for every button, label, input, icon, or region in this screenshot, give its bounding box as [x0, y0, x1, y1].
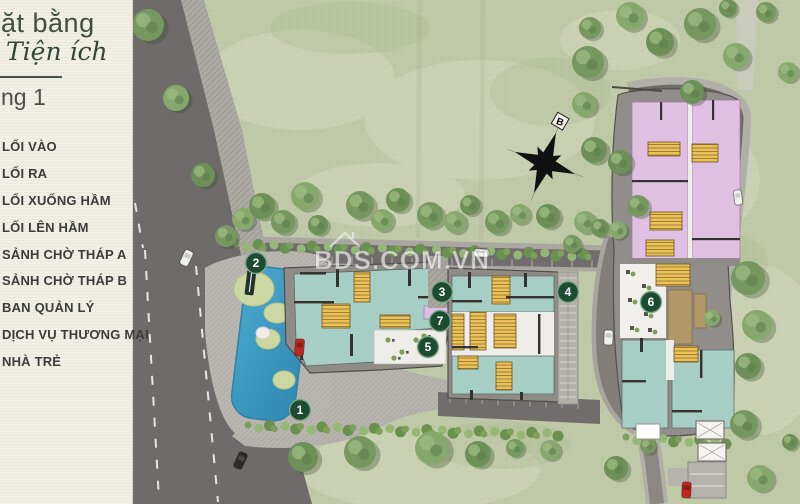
marker-1: 1: [290, 400, 311, 421]
legend-item: LỐI VÀO: [0, 133, 132, 160]
legend-item: SẢNH CHỜ THÁP A: [0, 241, 132, 268]
site-plan-page: 1 2 3 4 5 6 7 B BDS.COM.VN ặt bằng Tiện …: [0, 0, 800, 504]
plan-title-line2: Tiện ích: [6, 39, 132, 64]
legend-list: LỐI VÀO LỐI RA LỐI XUỐNG HẦM LỐI LÊN HẦM…: [0, 133, 132, 375]
svg-text:3: 3: [439, 285, 446, 299]
legend-item: DỊCH VỤ THƯƠNG MẠI: [0, 321, 132, 348]
marker-7: 7: [430, 311, 451, 332]
legend-item: LỐI XUỐNG HẦM: [0, 187, 132, 214]
title-divider: [0, 76, 62, 78]
legend-item: BAN QUẢN LÝ: [0, 294, 132, 321]
marker-6: 6: [641, 292, 662, 313]
svg-text:1: 1: [297, 403, 304, 417]
car-icon: [682, 482, 692, 498]
legend-item: NHÀ TRẺ: [0, 348, 132, 375]
floor-label: ng 1: [1, 84, 132, 111]
marker-3: 3: [432, 282, 453, 303]
marker-4: 4: [558, 282, 579, 303]
svg-text:6: 6: [648, 295, 655, 309]
svg-text:5: 5: [425, 340, 432, 354]
building-right-tower: [612, 87, 740, 436]
svg-text:BDS.COM.VN: BDS.COM.VN: [314, 245, 490, 275]
legend-item: LỐI LÊN HẦM: [0, 214, 132, 241]
car-icon: [294, 339, 304, 357]
legend-sidebar: ặt bằng Tiện ích ng 1 LỐI VÀO LỐI RA LỐI…: [0, 0, 133, 504]
marker-5: 5: [418, 337, 439, 358]
legend-item: SẢNH CHỜ THÁP B: [0, 267, 132, 294]
room-tan: [668, 290, 692, 344]
svg-text:7: 7: [437, 314, 444, 328]
svg-text:2: 2: [253, 256, 260, 270]
svg-text:4: 4: [565, 285, 572, 299]
car-icon: [604, 330, 614, 345]
car-icon: [733, 190, 743, 206]
plan-title-line1: ặt bằng: [1, 10, 132, 37]
marker-2: 2: [246, 253, 267, 274]
legend-item: LỐI RA: [0, 160, 132, 187]
